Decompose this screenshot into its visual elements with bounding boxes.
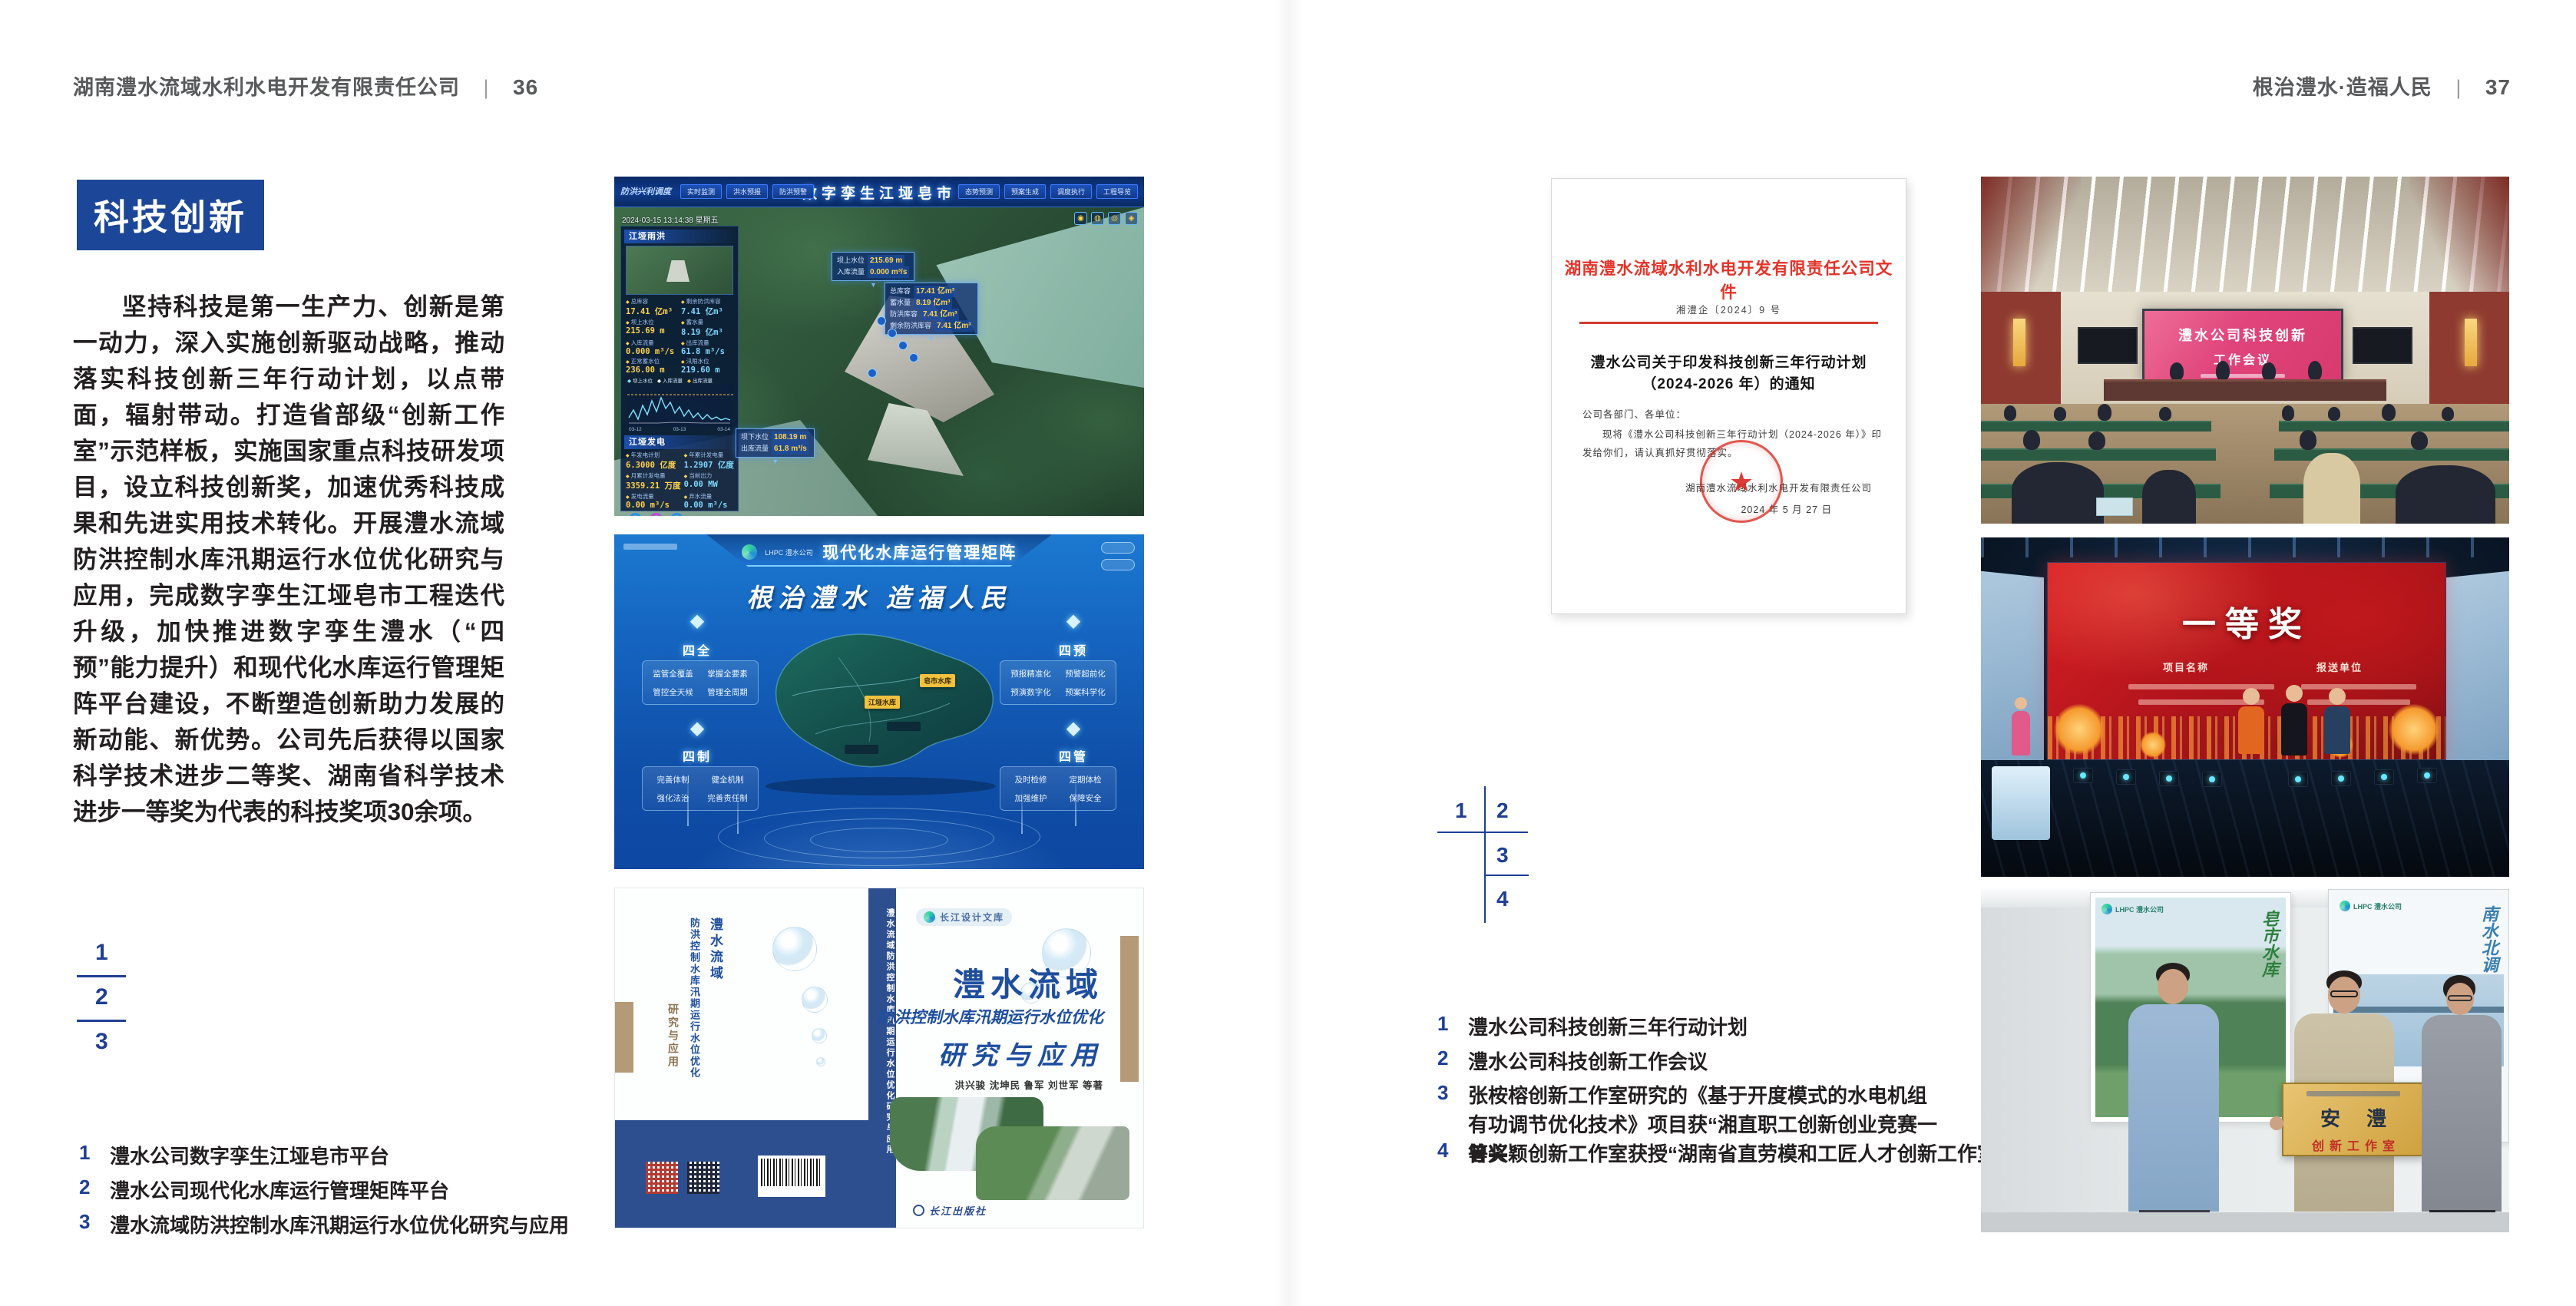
caption-row: 2 澧水公司现代化水库运行管理矩阵平台	[79, 1175, 449, 1204]
legend-item: ◆入库流量	[657, 376, 683, 384]
figure-matrix-platform: LHPC 澧水公司 现代化水库运行管理矩阵 根治澧水 造福人民 皂市水库 江垭水…	[614, 534, 1144, 869]
callout-row: 蓄水量8.19 亿m³	[890, 297, 973, 309]
page-header-left: 湖南澧水流域水利水电开发有限责任公司 | 36	[73, 71, 538, 101]
stat-label: 年累计发电量	[684, 451, 734, 459]
x-tick: 03-12	[629, 427, 642, 432]
publisher-name: 长江出版社	[929, 1203, 987, 1218]
back-title-2: 防洪控制水库汛期运行水位优化	[687, 918, 702, 1079]
stat-value: 219.60 m	[681, 365, 733, 375]
tissue-box	[2096, 498, 2133, 516]
legend-item: ◆坝上水位	[627, 376, 653, 384]
audience-silhouette	[2382, 404, 2396, 421]
callout-row: 防洪库容7.41 亿m³	[890, 309, 973, 320]
series-badge: 长江设计文库	[916, 908, 1012, 926]
audience-silhouette	[2300, 430, 2316, 450]
panelist-silhouette	[2216, 361, 2230, 381]
figure-key-1: 1	[95, 940, 108, 966]
group-icon: ◆	[1058, 610, 1089, 632]
person-head	[2158, 969, 2188, 1004]
pillar-art	[1075, 772, 1076, 826]
group-panel: 完善体制健全机制 强化法治完善责任制	[642, 766, 759, 811]
user-icon: ◉	[1074, 212, 1087, 225]
power-stats-grid: 年发电计划6.3000 亿度 年累计发电量1.2907 亿度 月累计发电量335…	[626, 451, 733, 510]
callout-upstream: 坝上水位215.69 m 入库流量0.000 m³/s	[832, 252, 914, 281]
screen-button	[1101, 542, 1135, 554]
group-icon: ◆	[1058, 717, 1089, 739]
nav-tab: 工程导览	[1096, 184, 1138, 199]
stat-value: 0.00 m³/s	[684, 501, 734, 510]
gauge-icon	[650, 513, 663, 516]
brand-text: LHPC 澧水公司	[2353, 901, 2402, 911]
stat-value: 215.69 m	[626, 326, 678, 336]
group-item: 完善体制	[657, 774, 689, 785]
left-data-panel: 江垭雨洪 总库容17.41 亿m³ 剩余防洪库容7.41 亿m³ 坝上水位215…	[620, 226, 739, 511]
caption-text: 曾兴颖创新工作室获授“湖南省直劳模和工匠人才创新工作室”	[1468, 1139, 2007, 1167]
document-header: 湖南澧水流域水利水电开发有限责任公司文件	[1564, 256, 1893, 303]
figure-head	[2243, 688, 2260, 705]
dam-thumbnail	[626, 246, 733, 295]
stage-light-icon	[2288, 772, 2308, 787]
caption-text: 澧水公司数字孪生江垭皂市平台	[110, 1141, 389, 1169]
bubble-art	[802, 987, 828, 1013]
authors: 洪兴骏 沈坤民 鲁军 刘世军 等著	[955, 1077, 1103, 1092]
audience-silhouette	[2142, 470, 2196, 524]
stat-label: 汛限水位	[681, 357, 733, 365]
water-level-chart	[627, 384, 733, 427]
audience-silhouette	[2088, 431, 2105, 450]
caption-text: 澧水公司科技创新工作会议	[1468, 1046, 1708, 1075]
group-item: 监管全覆盖	[653, 668, 693, 679]
group-name: 四全	[673, 640, 722, 659]
figure-body	[2324, 706, 2350, 754]
audience-table-row	[1981, 421, 2211, 431]
series-name: 长江设计文库	[940, 911, 1004, 924]
caption-row: 2 澧水公司科技创新工作会议	[1437, 1046, 1708, 1075]
qr-code	[646, 1162, 678, 1194]
front-title-tail: 研究与应用	[938, 1034, 1103, 1072]
callout-row: 出库流量61.8 m³/s	[741, 443, 809, 455]
dam-thumb-art	[666, 260, 689, 282]
stat: 月累计发电量3359.21 万度	[626, 471, 681, 491]
gate-marker-icon	[909, 353, 918, 362]
group-icon: ◆	[682, 610, 713, 632]
ceiling-lights-art	[1981, 537, 2509, 557]
nav-left-group: 实时监测 洪水预报 防洪预警	[680, 184, 814, 199]
stat-label: 入库流量	[626, 339, 678, 347]
spine-title: 澧水流域防洪控制水库汛期运行水位优化研究与应用	[868, 888, 896, 1228]
figure-body	[2281, 703, 2307, 755]
person-body-gray	[2422, 1015, 2502, 1212]
group-item: 管理全周期	[707, 686, 748, 698]
caption-row: 1 澧水公司科技创新三年行动计划	[1437, 1012, 1748, 1040]
book-spread: 湖南澧水流域水利水电开发有限责任公司 | 36 根治澧水·造福人民 | 37 科…	[0, 0, 2576, 1306]
document-number: 湘澧企〔2024〕9 号	[1552, 302, 1906, 316]
lhpc-logo-badge: LHPC 澧水公司	[2101, 904, 2164, 914]
stat: 正常蓄水位236.00 m	[626, 357, 678, 375]
caption-row: 3 澧水流域防洪控制水库汛期运行水位优化研究与应用	[79, 1210, 569, 1238]
nav-right-group: 态势预测 预案生成 调度执行 工程导览	[958, 184, 1138, 199]
slogan-calligraphy: 根治澧水 造福人民	[614, 577, 1144, 614]
stat: 弃水流量0.00 m³/s	[684, 492, 734, 510]
group-name: 四管	[1049, 746, 1098, 765]
stat-label: 月累计发电量	[626, 471, 681, 480]
group-item: 预演数字化	[1010, 686, 1051, 698]
back-title-3: 研究与应用	[666, 1003, 681, 1069]
section-title: 科技创新	[77, 180, 264, 250]
stage-light-icon	[2417, 768, 2437, 783]
figure-body	[2012, 711, 2030, 755]
head-table	[2104, 379, 2386, 401]
stat-value: 8.19 亿m³	[681, 326, 733, 338]
audience-silhouette	[2159, 407, 2171, 421]
callout-downstream: 坝下水位108.19 m 出库流量61.8 m³/s	[736, 428, 815, 458]
panelist-silhouette	[2308, 361, 2322, 381]
gate-marker-icon	[868, 369, 877, 378]
group-item: 及时检修	[1015, 774, 1047, 785]
stat-label: 发电流量	[626, 492, 681, 501]
figure-body	[2238, 706, 2264, 754]
figure-key-line	[77, 1020, 126, 1022]
stat: 蓄水量8.19 亿m³	[681, 318, 733, 338]
caption-number: 2	[1437, 1046, 1468, 1075]
bridge-art	[2333, 1007, 2504, 1013]
glasses-icon	[2448, 995, 2472, 1001]
stat-label: 当前出力	[684, 471, 734, 480]
toolbar-icons: ◉ ◍ ◎ ◈	[1074, 212, 1138, 225]
group-item: 强化法治	[657, 792, 689, 804]
document-title-line2: （2024-2026 年）的通知	[1552, 372, 1906, 393]
screen-button	[1101, 559, 1135, 570]
audience-table-row	[2274, 448, 2509, 461]
text-placeholder	[2307, 699, 2410, 705]
map-label-zaoshi: 皂市水库	[920, 674, 955, 687]
page-number-right: 37	[2485, 75, 2511, 99]
stat: 入库流量0.000 m³/s	[626, 339, 678, 356]
group-item: 预案科学化	[1065, 686, 1106, 698]
stat-label: 坝上水位	[626, 318, 678, 326]
document-title-line1: 澧水公司关于印发科技创新三年行动计划	[1552, 351, 1906, 372]
matrix-header: LHPC 澧水公司 现代化水库运行管理矩阵	[614, 541, 1144, 564]
company-seal: ★	[1700, 440, 1783, 523]
company-name: 湖南澧水流域水利水电开发有限责任公司	[73, 76, 460, 99]
stat-value: 61.8 m³/s	[681, 347, 733, 356]
stat: 剩余防洪库容7.41 亿m³	[681, 297, 733, 317]
x-tick: 03-13	[673, 427, 686, 432]
stat-value: 0.00 MW	[684, 480, 734, 489]
figure-digital-twin-dashboard: 防洪兴利调度 数字孪生江垭皂市 实时监测 洪水预报 防洪预警 态势预测 预案生成…	[614, 177, 1144, 516]
header-divider: |	[2455, 76, 2462, 99]
caption-text: 澧水流域防洪控制水库汛期运行水位优化研究与应用	[110, 1210, 569, 1238]
group-item: 定期体检	[1070, 774, 1102, 785]
locate-icon: ◎	[1108, 212, 1121, 225]
stat-label: 出库流量	[681, 339, 733, 347]
front-tan-bar	[1120, 936, 1139, 1082]
group-item: 健全机制	[712, 774, 744, 785]
front-title-region: 澧水流域	[953, 959, 1103, 1006]
stage-light-icon	[2374, 769, 2394, 785]
gauge-icon	[629, 513, 642, 516]
glow-orb-art	[2054, 704, 2105, 755]
back-title-1: 澧水流域	[706, 918, 725, 982]
gauge-icon	[670, 513, 683, 516]
stat-value: 17.41 亿m³	[626, 306, 678, 317]
stat-label: 蓄水量	[681, 318, 733, 326]
group-item: 完善责任制	[707, 792, 748, 804]
brand-text: LHPC 澧水公司	[2115, 904, 2164, 914]
panel-title: 江垭发电	[624, 435, 735, 449]
changjiang-logo-icon	[924, 911, 935, 923]
audience-silhouette	[2442, 407, 2454, 421]
figure-key-3: 3	[1496, 843, 1509, 868]
figure-award-ceremony: 一等奖 项目名称 报送单位	[1981, 537, 2509, 877]
lhpc-logo-icon	[2101, 904, 2112, 914]
page-number-left: 36	[513, 75, 538, 99]
gate-marker-icon	[898, 341, 908, 350]
stage-light-icon	[2159, 771, 2179, 786]
red-rule	[1579, 322, 1878, 324]
legend-item: ◆出库流量	[687, 376, 713, 384]
callout-row: 坝上水位215.69 m	[837, 255, 909, 266]
bubble-art	[772, 927, 817, 971]
matrix-title: 现代化水库运行管理矩阵	[822, 544, 1017, 562]
lhpc-logo-badge: LHPC 澧水公司	[2340, 901, 2402, 911]
winner-figure-orange	[2238, 688, 2264, 754]
timestamp: 2024-03-15 13:14:38 星期五	[622, 213, 719, 225]
figure-key-3: 3	[95, 1029, 108, 1055]
pillar-art	[1021, 788, 1023, 834]
map-label-jiangya: 江垭水库	[865, 696, 900, 709]
callout-row: 坝下水位108.19 m	[741, 431, 809, 443]
glasses-icon	[2330, 990, 2358, 997]
audience-silhouette	[2023, 430, 2040, 450]
stage-light-icon	[2331, 771, 2351, 786]
caption-text: 澧水公司现代化水库运行管理矩阵平台	[110, 1175, 449, 1204]
figure-book-cover: 澧水流域 防洪控制水库汛期运行水位优化 研究与应用 澧水流域防洪控制水库汛期运行…	[614, 888, 1144, 1228]
cover-photo-hillside	[976, 1126, 1129, 1200]
gate-marker-icon	[877, 316, 886, 326]
figure-key-line	[1484, 786, 1486, 923]
group-item: 掌握全要素	[707, 668, 748, 679]
barcode	[758, 1156, 825, 1197]
audience-table-row	[2279, 421, 2509, 431]
ceiling-corner-art	[1981, 177, 2081, 292]
panelist-silhouette	[2170, 362, 2184, 381]
group-name: 四预	[1049, 640, 1098, 659]
salutation: 公司各部门、各单位：	[1582, 406, 1686, 421]
pillar-art	[737, 788, 739, 834]
caption-row: 4 曾兴颖创新工作室获授“湖南省直劳模和工匠人才创新工作室”	[1437, 1139, 2007, 1167]
chart-x-ticks: 03-12 03-13 03-14	[629, 427, 730, 432]
bubble-art	[816, 1057, 825, 1066]
figure-head	[2015, 697, 2027, 709]
caption-number: 3	[79, 1210, 110, 1238]
group-name: 四制	[673, 746, 722, 765]
audience-silhouette	[2098, 404, 2111, 421]
callout-reservoir: 总库容17.41 亿m³ 蓄水量8.19 亿m³ 防洪库容7.41 亿m³ 剩余…	[885, 283, 978, 335]
stat: 汛限水位219.60 m	[681, 357, 733, 375]
stat: 年发电计划6.3000 亿度	[626, 451, 681, 471]
rain-stats-grid: 总库容17.41 亿m³ 剩余防洪库容7.41 亿m³ 坝上水位215.69 m…	[626, 297, 733, 375]
callout-row: 剩余防洪库容7.41 亿m³	[890, 320, 973, 332]
stat-value: 7.41 亿m³	[681, 306, 733, 317]
dashboard-top-bar: 防洪兴利调度 数字孪生江垭皂市 实时监测 洪水预报 防洪预警 态势预测 预案生成…	[614, 177, 1144, 207]
audience-silhouette	[2282, 405, 2294, 421]
plaque-subtitle: 创新工作室	[2283, 1136, 2423, 1154]
stat-label: 弃水流量	[684, 492, 734, 501]
front-title-sub: 防洪控制水库汛期运行水位优化	[878, 1005, 1103, 1028]
panel-title: 江垭雨洪	[624, 230, 735, 243]
floor-art	[1981, 1212, 2509, 1232]
figure-head	[2286, 685, 2303, 702]
figure-head	[2329, 688, 2346, 705]
figure-plaque-photo: LHPC 澧水公司 皂市水库 LHPC 澧水公司 南水北调 安澧 创新工作室	[1981, 889, 2509, 1232]
audience-silhouette	[2012, 462, 2104, 524]
glow-orb-art	[2140, 732, 2166, 758]
page-gutter	[1275, 0, 1302, 1306]
caption-number: 4	[1437, 1139, 1468, 1167]
caption-number: 1	[1437, 1012, 1468, 1040]
group-item: 保障安全	[1070, 792, 1102, 804]
nav-tab: 预案生成	[1004, 184, 1046, 199]
tv-screen	[2078, 327, 2138, 364]
stage-light-icon	[2202, 772, 2222, 787]
plaque-company-placeholder	[2306, 1091, 2400, 1096]
plaque-title: 安澧	[2283, 1103, 2423, 1132]
stat-label: 总库容	[626, 297, 678, 306]
header-divider: |	[484, 76, 490, 99]
map-label-small	[845, 745, 878, 754]
group-panel: 监管全覆盖掌握全要素 管控全天候管理全周期	[642, 660, 759, 705]
wall-lamp-icon	[2465, 319, 2477, 366]
group-item: 预警超前化	[1065, 668, 1106, 679]
audience-silhouette	[2328, 407, 2340, 421]
ring-art	[810, 828, 948, 852]
qr-code	[687, 1162, 719, 1194]
figure-official-document: 湖南澧水流域水利水电开发有限责任公司文件 湘澧企〔2024〕9 号 澧水公司关于…	[1551, 178, 1906, 614]
caption-number: 2	[79, 1175, 110, 1204]
poster-calligraphy: 皂市水库	[2257, 910, 2281, 977]
audience-silhouette	[2004, 405, 2016, 421]
seal-star-icon: ★	[1729, 466, 1754, 498]
publisher-logo-icon	[913, 1205, 924, 1216]
group-item: 加强维护	[1015, 792, 1047, 804]
award-title: 一等奖	[2048, 597, 2445, 646]
back-tan-block	[615, 1002, 633, 1073]
audience-silhouette	[2303, 453, 2360, 524]
host-figure	[2012, 697, 2030, 755]
figure-key-2: 2	[1496, 798, 1509, 823]
pillar-art	[687, 772, 689, 826]
nav-tab: 态势预测	[958, 184, 1000, 199]
figure-key-line	[77, 975, 126, 977]
publisher: 长江出版社	[913, 1203, 987, 1218]
figure-key-1: 1	[1455, 798, 1467, 823]
stage-light-icon	[2116, 769, 2136, 785]
audience-table-row	[1981, 448, 2216, 461]
caption-row: 1 澧水公司数字孪生江垭皂市平台	[79, 1141, 389, 1169]
stage-light-icon	[2073, 768, 2093, 783]
caption-number: 1	[79, 1141, 110, 1169]
nav-tab: 调度执行	[1050, 184, 1092, 199]
stat-value: 1.2907 亿度	[684, 459, 734, 471]
person-body-blue-polo	[2128, 1004, 2219, 1212]
stat: 当前出力0.00 MW	[684, 471, 734, 491]
group-icon: ◆	[682, 717, 713, 739]
map-label-small	[887, 722, 921, 731]
text-placeholder	[2301, 684, 2416, 689]
person-hand	[2270, 1116, 2283, 1130]
generator-gauges	[629, 513, 730, 516]
panelist-silhouette	[2262, 362, 2276, 381]
group-item: 预报精准化	[1010, 668, 1051, 679]
stat-label: 正常蓄水位	[626, 357, 678, 365]
group-panel: 预报精准化预警超前化 预演数字化预案科学化	[1000, 660, 1116, 705]
award-plaque: 安澧 创新工作室	[2282, 1083, 2425, 1156]
stat: 总库容17.41 亿m³	[626, 297, 678, 317]
nav-tab: 防洪预警	[772, 184, 814, 199]
figure-key-4: 4	[1496, 887, 1509, 911]
weather-icon: ◍	[1091, 212, 1104, 225]
column-label: 报送单位	[2316, 660, 2363, 674]
audience-silhouette	[2054, 407, 2066, 421]
podium	[1992, 766, 2050, 840]
x-tick: 03-14	[717, 427, 730, 432]
stat-label: 年发电计划	[626, 451, 681, 459]
slogan-text: 根治澧水·造福人民	[2253, 76, 2432, 99]
figure-meeting-photo: 澧水公司科技创新 工作会议	[1981, 177, 2509, 524]
body-paragraph: 坚持科技是第一生产力、创新是第一动力，深入实施创新驱动战略，推动落实科技创新三年…	[73, 289, 504, 830]
stat: 年累计发电量1.2907 亿度	[684, 451, 734, 471]
layers-icon: ◈	[1125, 212, 1138, 225]
stat-value: 3359.21 万度	[626, 480, 681, 491]
stat: 坝上水位215.69 m	[626, 318, 678, 338]
nav-tab: 洪水预报	[726, 184, 768, 199]
callout-row: 入库流量0.000 m³/s	[837, 266, 909, 278]
figure-key-2: 2	[95, 984, 108, 1010]
group-item: 管控全天候	[653, 686, 693, 698]
timestamp-placeholder	[623, 544, 677, 550]
brand-text: LHPC 澧水公司	[765, 549, 813, 557]
chart-legend: ◆坝上水位 ◆入库流量 ◆出库流量	[627, 376, 732, 384]
wall-lamp-icon	[2013, 319, 2025, 366]
nav-tab: 实时监测	[680, 184, 722, 199]
stat-value: 0.000 m³/s	[626, 347, 678, 356]
group-panel: 及时检修定期体检 加强维护保障安全	[1000, 766, 1116, 811]
audience-silhouette	[2396, 465, 2495, 524]
lhpc-logo-icon	[2340, 901, 2350, 911]
stat-value: 236.00 m	[626, 365, 678, 375]
stat-label: 剩余防洪库容	[681, 297, 733, 306]
stat: 出库流量61.8 m³/s	[681, 339, 733, 356]
tv-screen	[2353, 327, 2412, 364]
body-line: 现将《澧水公司科技创新三年行动计划（2024-2026 年）》印	[1602, 426, 1882, 441]
glow-orb-art	[2389, 704, 2439, 755]
figure-key-line	[1437, 832, 1528, 833]
screen-line1: 澧水公司科技创新	[2144, 325, 2341, 345]
audience-silhouette	[2411, 431, 2428, 450]
page-header-right: 根治澧水·造福人民 | 37	[2253, 71, 2511, 101]
stat-value: 0.00 m³/s	[626, 501, 681, 510]
callout-row: 总库容17.41 亿m³	[890, 286, 973, 297]
winner-figure-navy	[2324, 688, 2350, 754]
caption-text: 澧水公司科技创新三年行动计划	[1468, 1012, 1748, 1040]
stat: 发电流量0.00 m³/s	[626, 492, 681, 510]
gate-marker-icon	[888, 329, 897, 338]
figure-key-line	[1484, 875, 1529, 876]
lhpc-logo-icon	[742, 544, 757, 560]
column-label: 项目名称	[2163, 660, 2209, 674]
poster-calligraphy: 南水北调	[2476, 905, 2501, 973]
